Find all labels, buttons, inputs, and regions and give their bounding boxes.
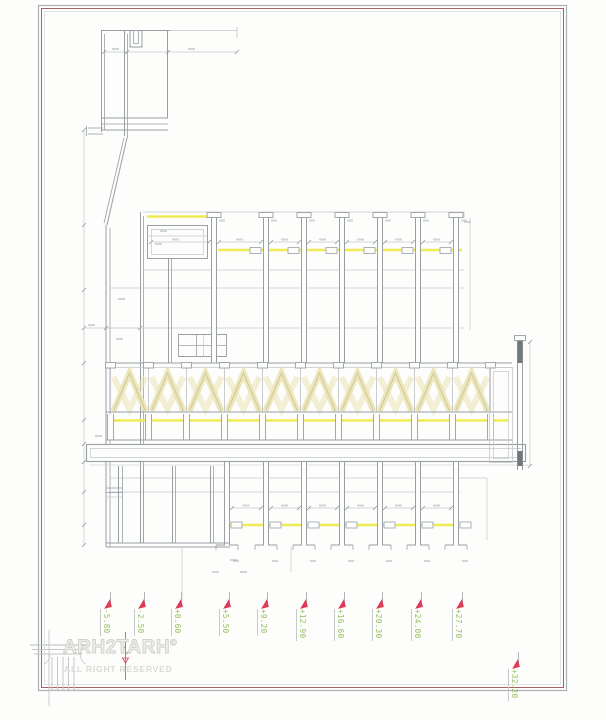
level-label: +20.30 bbox=[372, 609, 383, 641]
floor-slab bbox=[87, 445, 531, 466]
level-label: +32.20 bbox=[508, 669, 519, 701]
level-label: +24.00 bbox=[411, 609, 422, 641]
truss-band bbox=[106, 363, 513, 441]
drawing-sheet: -5.80-2.50+0.60+5.50+9.20+12.90+16.60+20… bbox=[0, 0, 606, 720]
level-label: -5.80 bbox=[100, 609, 111, 636]
copyright-symbol: © bbox=[170, 638, 177, 648]
logo-brand-text: ARH2TARH© bbox=[63, 637, 177, 659]
tower-section bbox=[87, 27, 238, 225]
level-label: +16.60 bbox=[334, 609, 345, 641]
level-label: +12.90 bbox=[296, 609, 307, 641]
level-label: +9.20 bbox=[257, 609, 268, 636]
lower-floors bbox=[106, 462, 487, 606]
brand-name: ARH2TARH bbox=[63, 637, 170, 658]
level-label: +0.60 bbox=[171, 609, 182, 636]
level-label: +27.70 bbox=[452, 609, 463, 641]
logo-tagline-text: ALL RIGHT RESERVED bbox=[64, 664, 173, 674]
level-label: -2.50 bbox=[134, 609, 145, 636]
level-label: +5.50 bbox=[219, 609, 230, 636]
